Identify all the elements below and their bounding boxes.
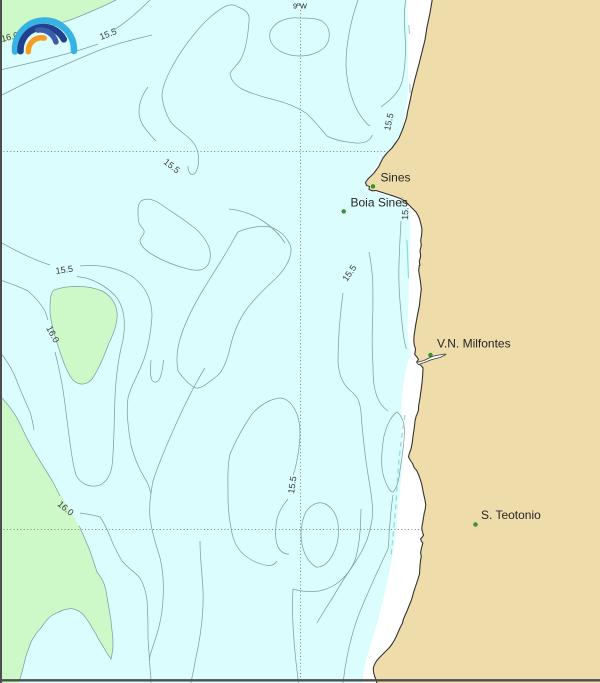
svg-text:Sines: Sines: [381, 171, 411, 185]
svg-text:V.N. Milfontes: V.N. Milfontes: [437, 337, 511, 351]
svg-text:S. Teotonio: S. Teotonio: [481, 508, 541, 522]
svg-text:9ºW: 9ºW: [293, 2, 308, 11]
svg-text:Boia Sines: Boia Sines: [351, 196, 408, 210]
